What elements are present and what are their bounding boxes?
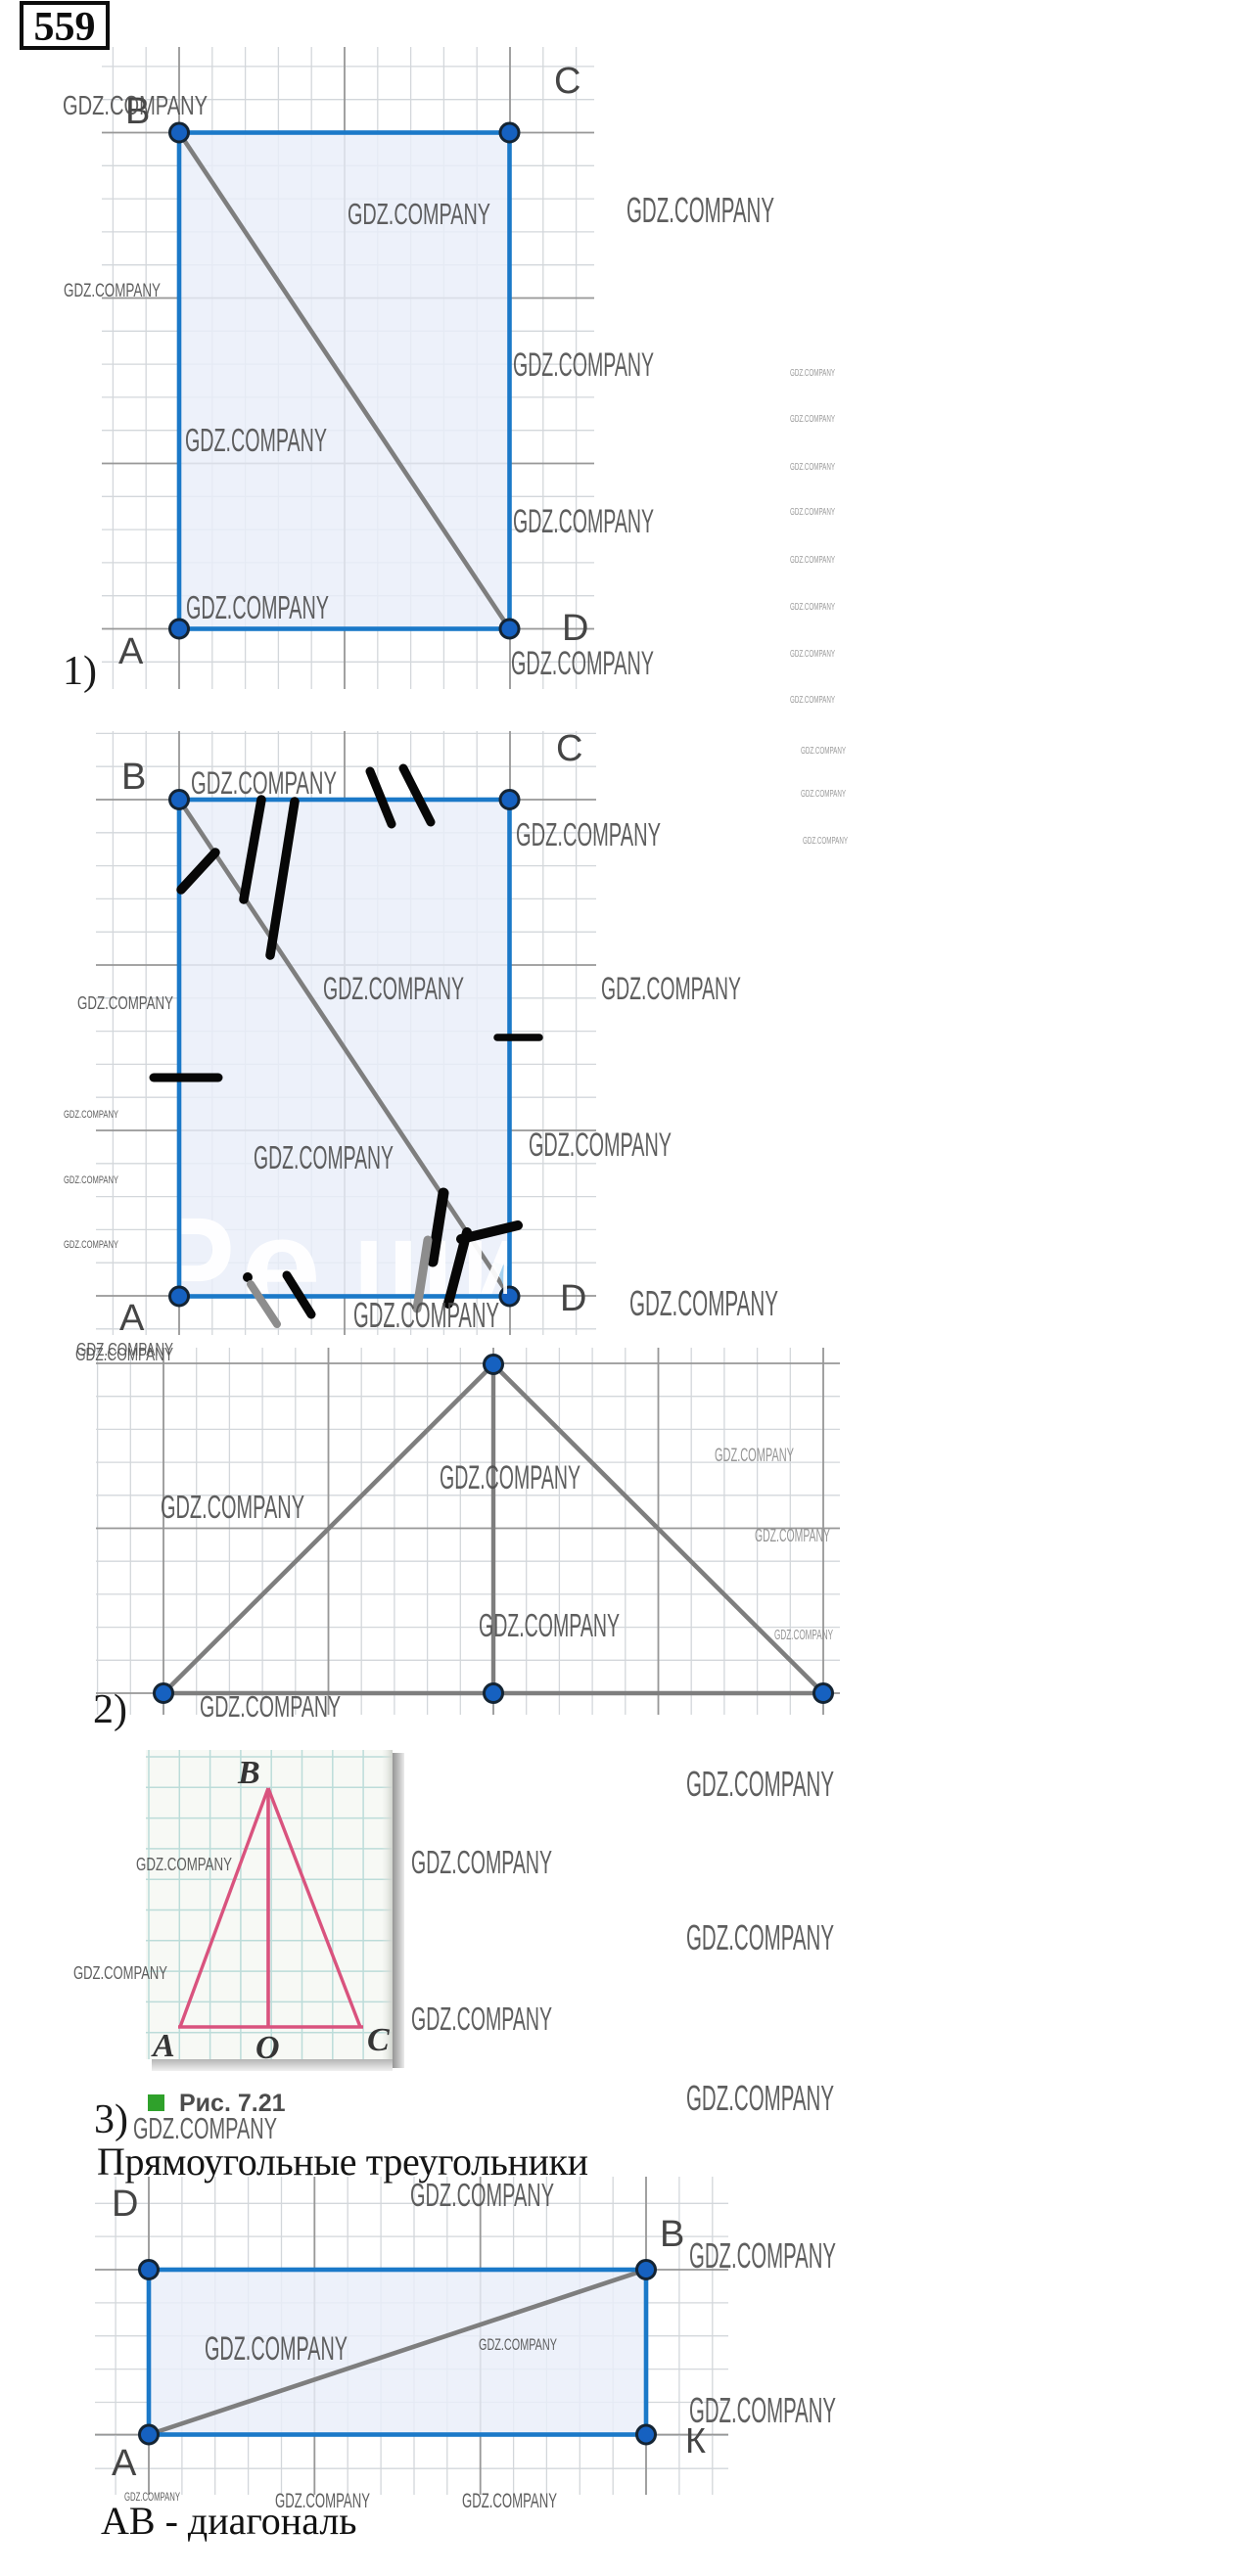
svg-text:GDZ.COMPANY: GDZ.COMPANY xyxy=(191,765,337,801)
svg-text:GDZ.COMPANY: GDZ.COMPANY xyxy=(136,1855,232,1874)
svg-text:GDZ.COMPANY: GDZ.COMPANY xyxy=(755,1526,830,1545)
svg-text:GDZ.COMPANY: GDZ.COMPANY xyxy=(161,1489,304,1525)
svg-text:GDZ.COMPANY: GDZ.COMPANY xyxy=(529,1127,672,1164)
svg-text:1): 1) xyxy=(63,649,97,694)
svg-text:GDZ.COMPANY: GDZ.COMPANY xyxy=(479,2335,557,2354)
svg-text:GDZ.COMPANY: GDZ.COMPANY xyxy=(411,2001,552,2037)
svg-text:D: D xyxy=(112,2184,138,2225)
svg-text:GDZ.COMPANY: GDZ.COMPANY xyxy=(516,816,661,852)
svg-text:GDZ.COMPANY: GDZ.COMPANY xyxy=(801,788,846,800)
svg-text:C: C xyxy=(554,61,580,102)
svg-text:GDZ.COMPANY: GDZ.COMPANY xyxy=(511,645,654,682)
svg-text:A: A xyxy=(118,631,144,672)
svg-text:GDZ.COMPANY: GDZ.COMPANY xyxy=(513,346,654,384)
svg-text:O: O xyxy=(255,2030,280,2066)
svg-text:GDZ.COMPANY: GDZ.COMPANY xyxy=(64,1239,118,1251)
svg-text:GDZ.COMPANY: GDZ.COMPANY xyxy=(64,1109,118,1121)
svg-text:GDZ.COMPANY: GDZ.COMPANY xyxy=(790,648,835,660)
svg-text:АВ - диагональ: АВ - диагональ xyxy=(101,2499,357,2543)
svg-text:GDZ.COMPANY: GDZ.COMPANY xyxy=(440,1459,580,1496)
svg-text:GDZ.COMPANY: GDZ.COMPANY xyxy=(64,281,161,301)
svg-text:GDZ.COMPANY: GDZ.COMPANY xyxy=(801,745,846,757)
svg-text:GDZ.COMPANY: GDZ.COMPANY xyxy=(790,554,835,566)
svg-text:GDZ.COMPANY: GDZ.COMPANY xyxy=(205,2330,348,2368)
svg-text:GDZ.COMPANY: GDZ.COMPANY xyxy=(689,2390,836,2430)
svg-text:GDZ.COMPANY: GDZ.COMPANY xyxy=(686,1764,834,1804)
svg-text:GDZ.COMPANY: GDZ.COMPANY xyxy=(689,2235,836,2276)
svg-text:D: D xyxy=(560,1278,586,1319)
svg-text:B: B xyxy=(660,2214,684,2255)
svg-text:GDZ.COMPANY: GDZ.COMPANY xyxy=(411,1844,552,1880)
svg-text:GDZ.COMPANY: GDZ.COMPANY xyxy=(186,589,329,625)
svg-text:GDZ.COMPANY: GDZ.COMPANY xyxy=(200,1689,341,1724)
svg-text:GDZ.COMPANY: GDZ.COMPANY xyxy=(73,1963,167,1983)
svg-text:GDZ.COMPANY: GDZ.COMPANY xyxy=(77,993,173,1013)
svg-text:GDZ.COMPANY: GDZ.COMPANY xyxy=(410,2177,554,2213)
svg-text:B: B xyxy=(121,757,146,798)
svg-text:559: 559 xyxy=(34,5,96,50)
svg-text:GDZ.COMPANY: GDZ.COMPANY xyxy=(513,503,654,540)
svg-text:GDZ.COMPANY: GDZ.COMPANY xyxy=(462,2490,557,2512)
svg-text:GDZ.COMPANY: GDZ.COMPANY xyxy=(686,2078,834,2118)
svg-text:3): 3) xyxy=(94,2097,128,2142)
svg-text:A: A xyxy=(112,2443,137,2484)
svg-text:GDZ.COMPANY: GDZ.COMPANY xyxy=(64,1174,118,1186)
svg-text:GDZ.COMPANY: GDZ.COMPANY xyxy=(629,1283,778,1323)
svg-text:GDZ.COMPANY: GDZ.COMPANY xyxy=(715,1446,794,1466)
svg-text:GDZ.COMPANY: GDZ.COMPANY xyxy=(185,422,327,458)
svg-text:GDZ.COMPANY: GDZ.COMPANY xyxy=(323,971,464,1006)
svg-text:GDZ.COMPANY: GDZ.COMPANY xyxy=(790,367,835,379)
svg-text:2): 2) xyxy=(93,1687,127,1732)
svg-text:GDZ.COMPANY: GDZ.COMPANY xyxy=(686,1917,834,1957)
svg-text:D: D xyxy=(562,608,588,649)
svg-text:GDZ.COMPANY: GDZ.COMPANY xyxy=(626,190,774,230)
svg-text:A: A xyxy=(151,2028,175,2064)
svg-text:GDZ.COMPANY: GDZ.COMPANY xyxy=(774,1627,833,1643)
svg-text:GDZ.COMPANY: GDZ.COMPANY xyxy=(254,1139,394,1175)
svg-text:GDZ.COMPANY: GDZ.COMPANY xyxy=(790,694,835,706)
svg-text:C: C xyxy=(367,2022,390,2058)
svg-text:GDZ.COMPANY: GDZ.COMPANY xyxy=(790,461,835,473)
svg-text:A: A xyxy=(119,1298,145,1339)
svg-text:B: B xyxy=(237,1755,260,1791)
svg-text:GDZ.COMPANY: GDZ.COMPANY xyxy=(63,90,208,120)
svg-text:GDZ.COMPANY: GDZ.COMPANY xyxy=(790,506,835,518)
svg-text:GDZ.COMPANY: GDZ.COMPANY xyxy=(75,1345,173,1364)
svg-text:GDZ.COMPANY: GDZ.COMPANY xyxy=(348,197,490,231)
svg-text:GDZ.COMPANY: GDZ.COMPANY xyxy=(803,835,848,847)
svg-text:C: C xyxy=(556,728,582,769)
svg-text:GDZ.COMPANY: GDZ.COMPANY xyxy=(790,601,835,613)
svg-text:GDZ.COMPANY: GDZ.COMPANY xyxy=(479,1607,620,1643)
svg-text:GDZ.COMPANY: GDZ.COMPANY xyxy=(601,971,741,1006)
svg-text:GDZ.COMPANY: GDZ.COMPANY xyxy=(790,413,835,425)
svg-text:GDZ.COMPANY: GDZ.COMPANY xyxy=(353,1295,499,1335)
